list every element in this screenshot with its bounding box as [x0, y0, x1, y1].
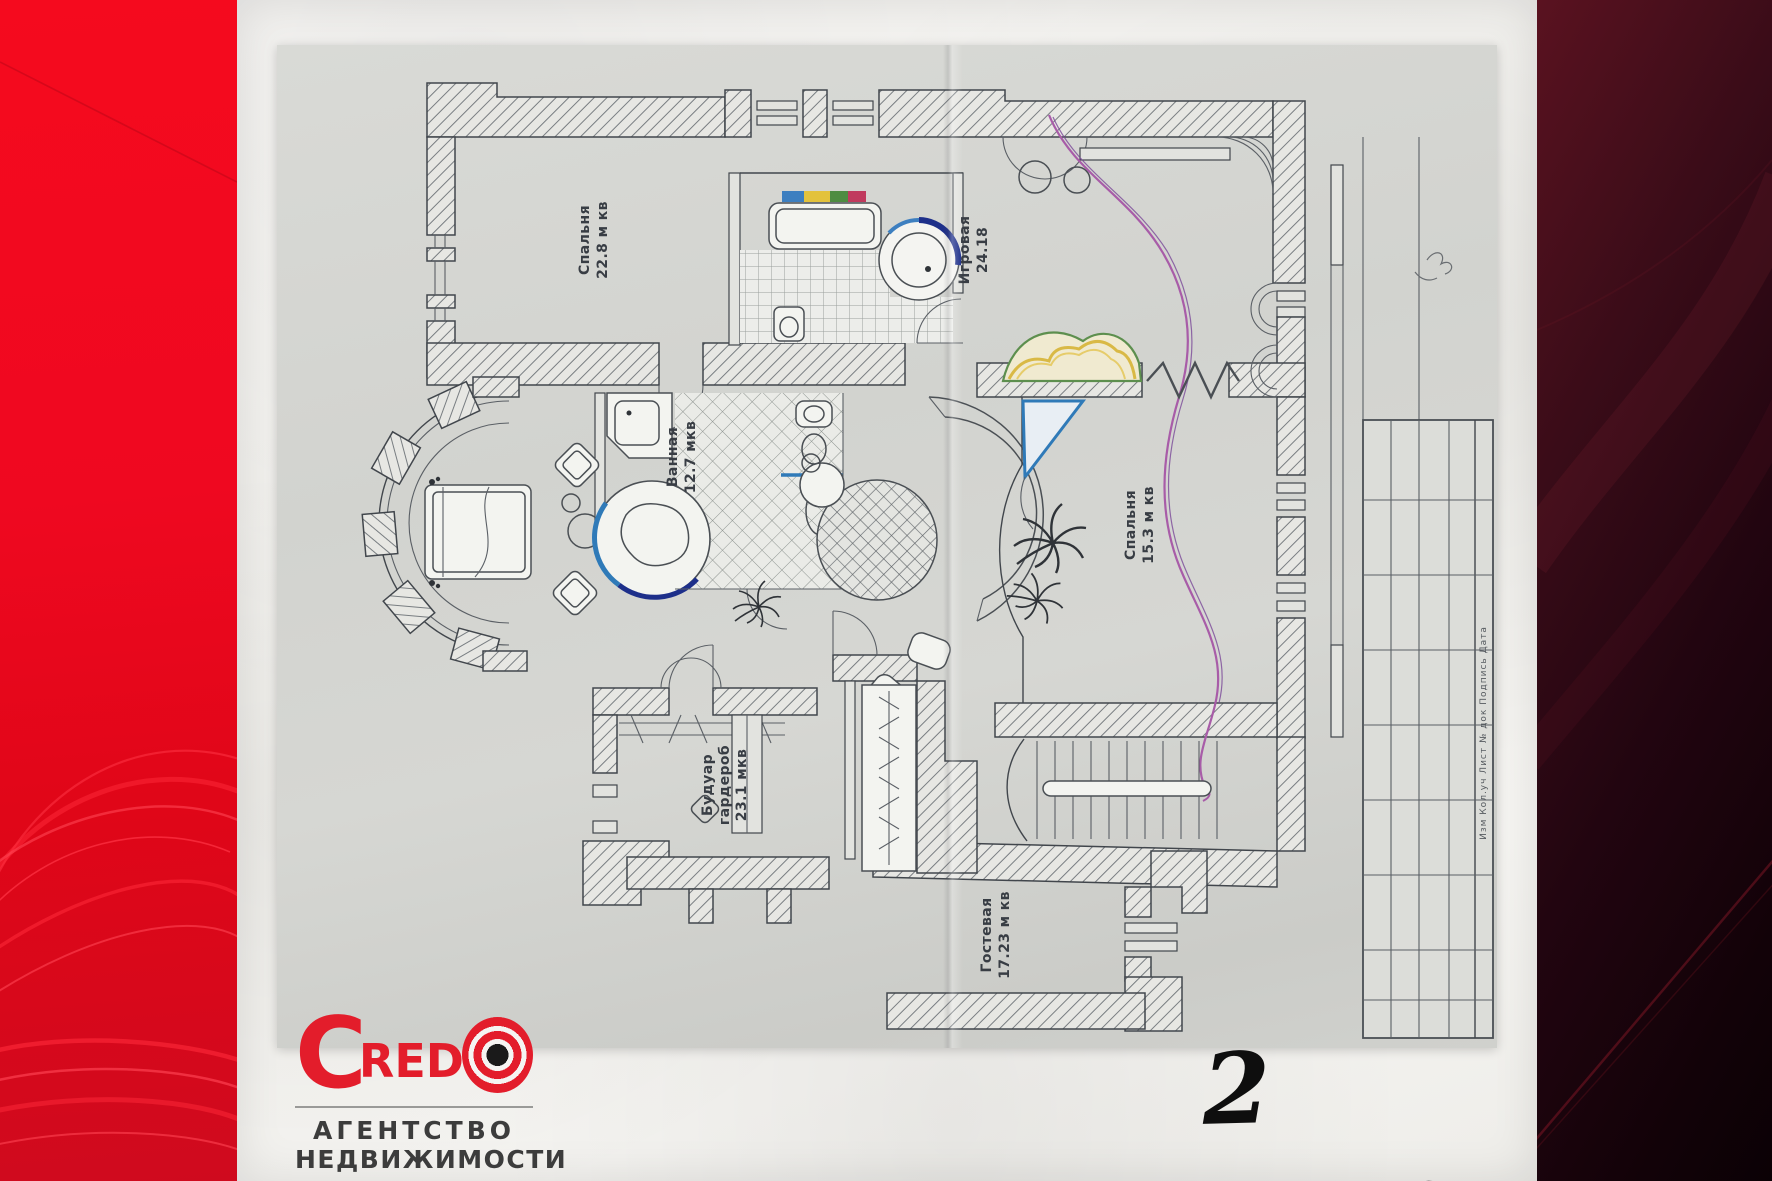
- chair: [551, 569, 599, 617]
- tower-bay: [362, 377, 602, 671]
- credo-logo: C RED АГЕНТСТВО НЕДВИЖИМОСТИ: [295, 1008, 533, 1181]
- floor-caption: 2 этаже: [976, 1025, 1502, 1181]
- bedroom-2: [1000, 397, 1086, 703]
- svg-text:12.7 мкв: 12.7 мкв: [683, 421, 699, 493]
- logo-tagline-2: НЕДВИЖИМОСТИ: [295, 1145, 533, 1174]
- svg-text:Спальня: Спальня: [577, 205, 593, 275]
- room-label-boudoir: Будуар гардероб 23.1 мкв: [700, 745, 750, 825]
- svg-text:17.23 м кв: 17.23 м кв: [997, 891, 1013, 979]
- staircase: [1007, 739, 1217, 841]
- title-block-text: Изм Кол.уч Лист № док Подпись Дата: [1479, 626, 1489, 840]
- logo-tagline-1: АГЕНТСТВО: [295, 1116, 533, 1145]
- logo-letter-c: C: [295, 1011, 367, 1097]
- dark-streak-graphic: [1537, 0, 1772, 1181]
- room-label-playroom: Игровая 24.18: [957, 216, 991, 285]
- background-red-panel: [0, 0, 237, 1181]
- top-bathroom: [740, 191, 963, 343]
- playroom: [1003, 115, 1277, 801]
- handrail: [1043, 781, 1211, 796]
- logo-bullseye-o-icon: [462, 1017, 533, 1093]
- svg-text:гардероб: гардероб: [717, 745, 733, 825]
- corridor-wardrobe: [862, 685, 916, 871]
- svg-text:Игровая: Игровая: [957, 216, 973, 285]
- svg-text:15.3 м кв: 15.3 м кв: [1141, 486, 1157, 564]
- paper-sheet: Изм Кол.уч Лист № док Подпись Дата Спаль…: [237, 0, 1537, 1181]
- svg-text:22.8 м кв: 22.8 м кв: [595, 201, 611, 279]
- svg-text:24.18: 24.18: [975, 227, 991, 273]
- poster: Изм Кол.уч Лист № док Подпись Дата Спаль…: [0, 0, 1772, 1181]
- sofa: [1003, 332, 1141, 381]
- svg-text:Спальня: Спальня: [1123, 490, 1139, 560]
- central-bathroom: [594, 393, 843, 629]
- floorplan-scan: Изм Кол.уч Лист № док Подпись Дата Спаль…: [277, 45, 1497, 1048]
- room-label-bedroom-1: Спальня 22.8 м кв: [577, 201, 611, 279]
- shower-cabin: [607, 393, 672, 458]
- room-label-guest: Гостевая 17.23 м кв: [979, 891, 1013, 979]
- svg-text:Гостевая: Гостевая: [979, 898, 995, 973]
- toilet: [774, 307, 804, 341]
- chair: [553, 441, 601, 489]
- zigzag-symbol: [1147, 363, 1239, 397]
- floorplan-drawing: Изм Кол.уч Лист № док Подпись Дата Спаль…: [277, 45, 1497, 1048]
- background-dark-panel: [1537, 0, 1772, 1181]
- title-block: Изм Кол.уч Лист № док Подпись Дата: [1363, 137, 1493, 1038]
- bathtub: [769, 203, 881, 249]
- svg-text:Ванная: Ванная: [665, 427, 681, 487]
- bed: [425, 485, 531, 579]
- svg-text:23.1 мкв: 23.1 мкв: [734, 749, 750, 821]
- red-swirl-graphic: [0, 0, 237, 1181]
- pink-curve: [1049, 115, 1218, 787]
- corner-shelf: [1023, 401, 1083, 477]
- svg-text:Будуар: Будуар: [700, 754, 716, 816]
- logo-letters-red: RED: [359, 1034, 464, 1088]
- room-label-bedroom-2: Спальня 15.3 м кв: [1123, 486, 1157, 564]
- toilet: [796, 401, 832, 427]
